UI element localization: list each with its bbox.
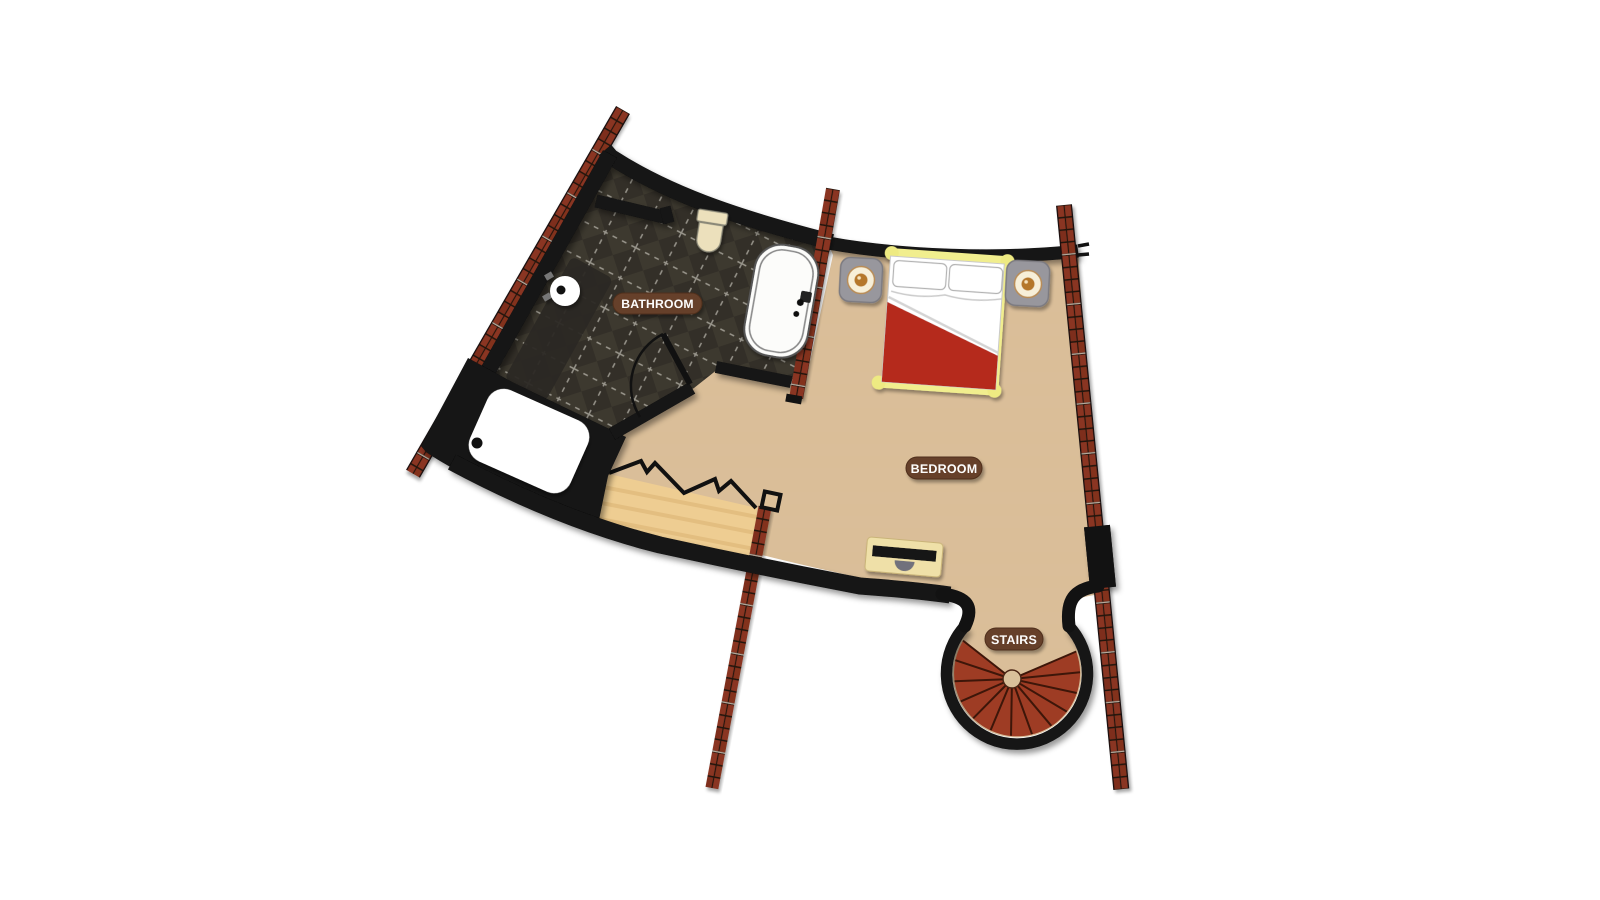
svg-text:BATHROOM: BATHROOM (621, 297, 693, 311)
svg-text:STAIRS: STAIRS (991, 633, 1037, 647)
svg-text:BEDROOM: BEDROOM (911, 462, 978, 476)
